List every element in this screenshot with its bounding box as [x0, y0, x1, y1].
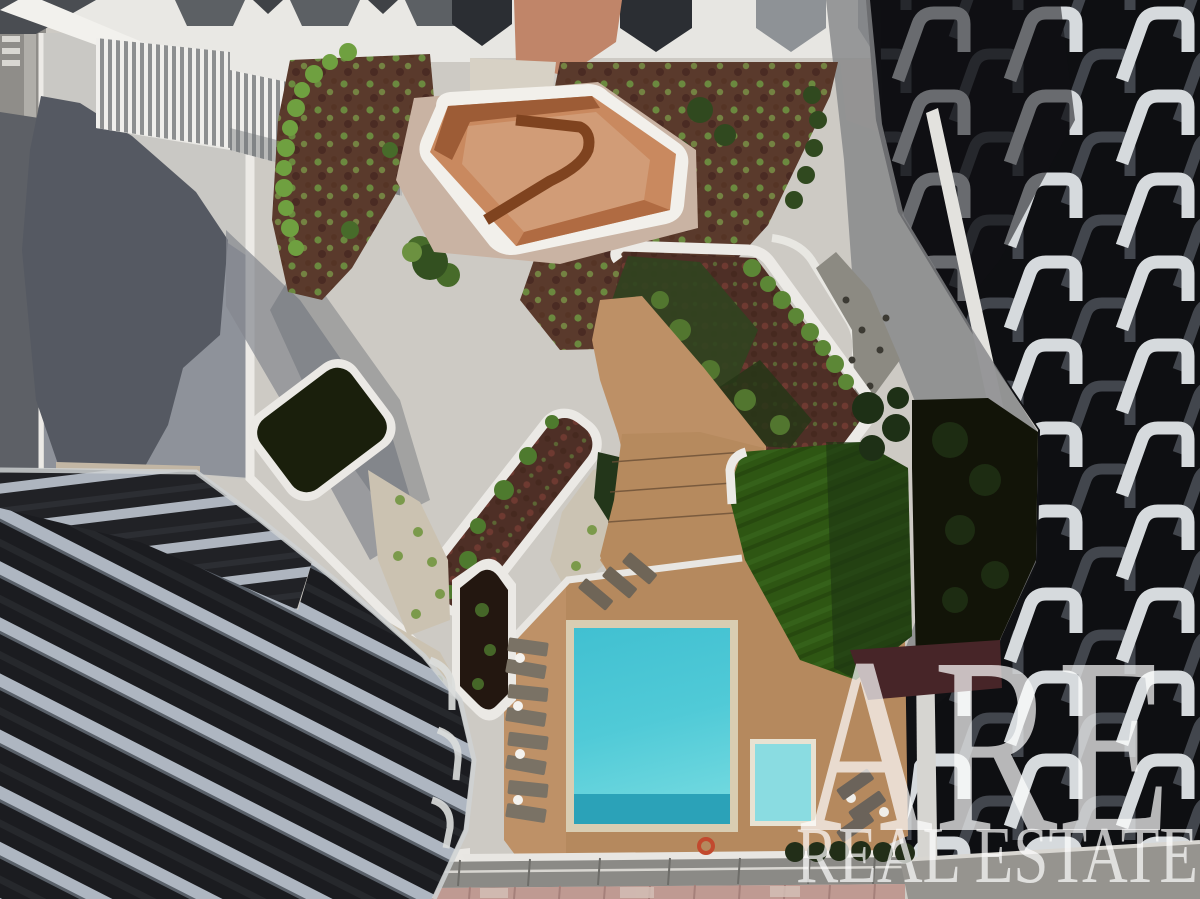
svg-text:REAL ESTATE: REAL ESTATE [796, 810, 1198, 899]
